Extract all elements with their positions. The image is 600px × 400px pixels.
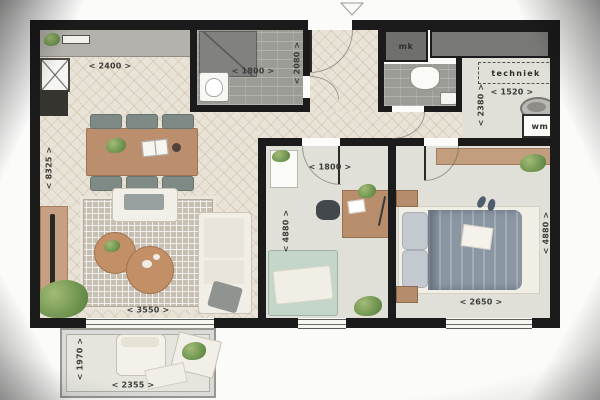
wall-bottom	[532, 318, 560, 328]
decor-stone	[142, 260, 152, 268]
dim-living-depth: < 8325 >	[45, 147, 54, 190]
wall-wc-bottom-left	[378, 106, 392, 112]
corridor-floor	[258, 112, 462, 138]
wall-bottom	[346, 318, 446, 328]
dim-balcony-width: < 2355 >	[112, 381, 155, 390]
sofa-cushion	[204, 218, 244, 258]
wall-mid-horizontal	[458, 138, 550, 146]
floor-plan: mk techniek wm	[0, 0, 600, 400]
bed-book	[461, 224, 494, 250]
wc-toilet	[410, 66, 440, 90]
wall-mid-horizontal	[340, 138, 424, 146]
study-window	[298, 319, 346, 329]
wall-right	[550, 20, 560, 328]
pillow	[402, 212, 428, 250]
dim-bedroom-depth: < 4880 >	[542, 212, 551, 255]
mk-label: mk	[399, 42, 414, 51]
toilet-bowl	[205, 78, 223, 97]
desk-chair	[316, 200, 340, 220]
wall-bathroom-left	[190, 30, 197, 112]
wall-bathroom-bottom	[190, 105, 310, 112]
dim-balcony-depth: < 1970 >	[76, 338, 85, 381]
wall-study-bedroom	[388, 138, 396, 318]
kitchen-cabinet	[40, 90, 68, 116]
dim-study-depth: < 4880 >	[282, 210, 291, 253]
bedroom-window	[446, 319, 532, 329]
sofa-cushion	[204, 260, 244, 284]
dim-living-width: < 3550 >	[127, 306, 170, 315]
shaft-block	[430, 30, 550, 58]
bowl	[172, 143, 181, 152]
sideboard-handle	[50, 214, 55, 286]
plant-icon	[104, 240, 120, 252]
entry-arrow-icon	[340, 2, 364, 16]
nightstand	[396, 190, 418, 207]
dining-chair	[90, 114, 122, 129]
open-book	[141, 139, 169, 158]
entry-door-leaf	[310, 30, 312, 72]
bedroom-door-leaf	[424, 146, 426, 180]
daybed-cushion	[272, 265, 333, 305]
wall-top-right	[352, 20, 550, 30]
wall-left	[30, 20, 40, 328]
wall-bottom	[214, 318, 298, 328]
balcony-armchair-back	[121, 337, 159, 347]
kitchen-hob	[40, 58, 70, 92]
wall-wc-right	[456, 58, 462, 112]
dining-chair	[162, 114, 194, 129]
coffee-table	[126, 246, 174, 294]
kitchen-tray	[62, 35, 90, 44]
dim-tech-depth: < 2380 >	[477, 84, 486, 127]
dim-kitchen-width: < 2400 >	[89, 62, 132, 71]
wc-sink	[440, 92, 457, 105]
pet-basket-inner	[527, 102, 546, 112]
wall-wc-left	[378, 30, 384, 112]
nightstand	[396, 286, 418, 303]
loveseat-cushion	[124, 194, 164, 210]
dim-bath-depth: < 2080 >	[293, 42, 302, 85]
wall-bottom	[30, 318, 86, 328]
wall-bathroom-right-stub	[303, 98, 310, 112]
dining-chair	[126, 114, 158, 129]
desk-paper	[347, 199, 366, 214]
pillow	[402, 250, 428, 288]
dim-bath-width: < 1800 >	[232, 67, 275, 76]
techniek-label: techniek	[491, 69, 540, 78]
wall-study-left	[258, 138, 266, 318]
dim-tech-width: < 1520 >	[491, 88, 534, 97]
duvet	[428, 210, 522, 290]
techniek-zone: techniek	[478, 62, 554, 84]
decor-stone	[153, 254, 160, 260]
wall-bathroom-right	[303, 30, 310, 76]
wm-label: wm	[532, 122, 549, 131]
dim-bedroom-width: < 2650 >	[460, 298, 503, 307]
dim-study-width: < 1800 >	[309, 163, 352, 172]
plant-icon	[272, 150, 290, 162]
meter-closet: mk	[384, 30, 428, 62]
wall-top-left	[30, 20, 308, 30]
